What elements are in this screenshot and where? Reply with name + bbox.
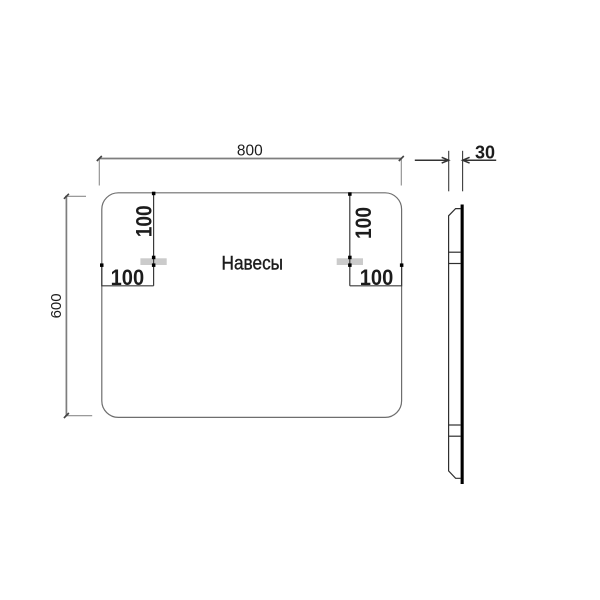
svg-text:30: 30 [475,142,495,162]
svg-text:800: 800 [237,142,263,159]
svg-text:100: 100 [360,265,394,290]
svg-text:Навесы: Навесы [222,252,284,274]
svg-text:100: 100 [351,207,376,239]
svg-text:600: 600 [48,293,65,318]
svg-text:100: 100 [111,265,145,290]
svg-text:100: 100 [132,205,157,237]
